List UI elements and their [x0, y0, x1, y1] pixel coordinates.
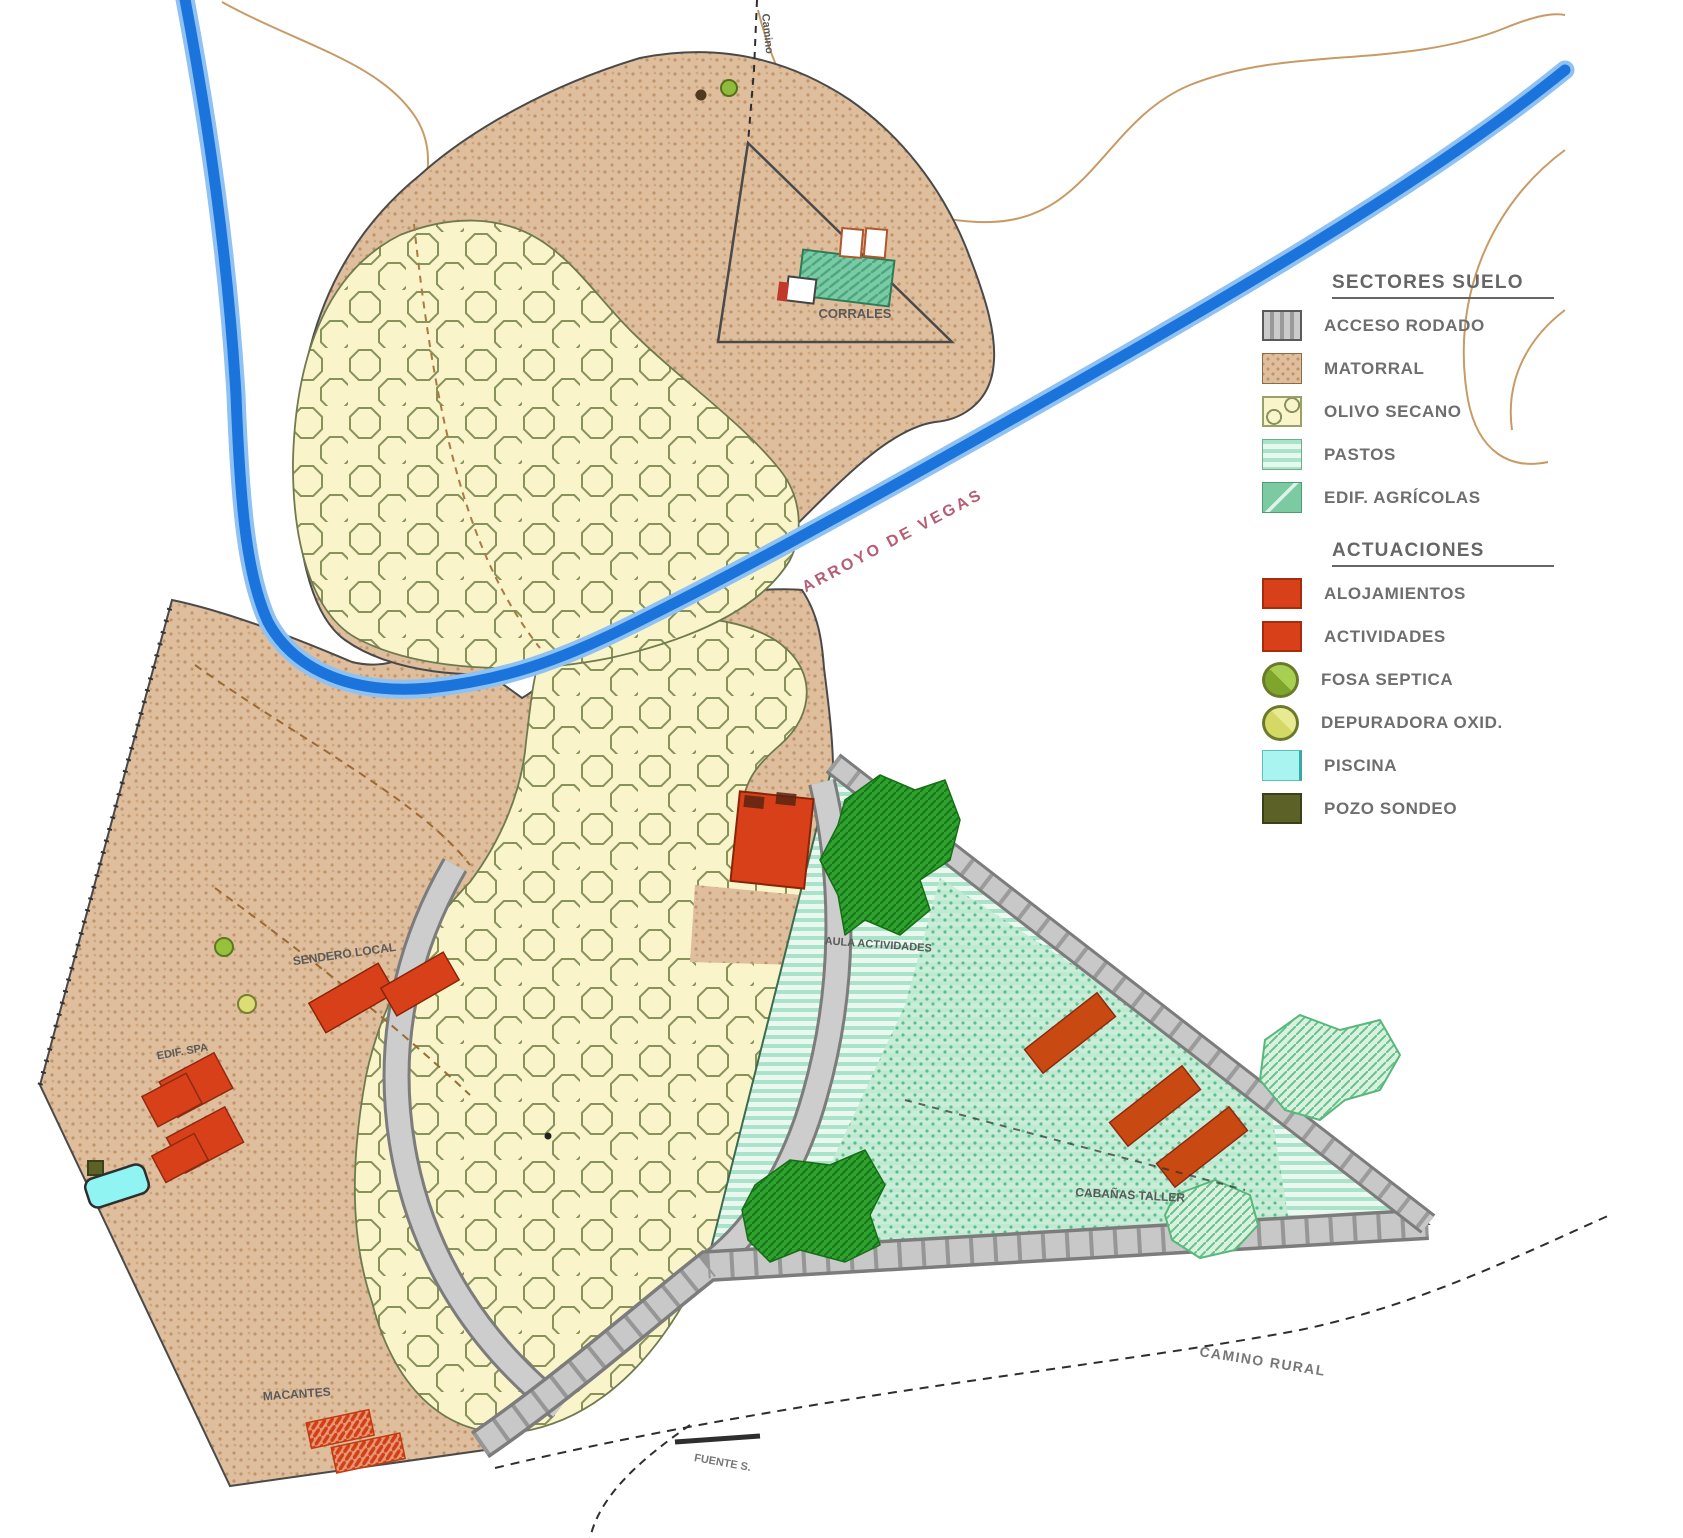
camino-rural-label: CAMINO RURAL: [1198, 1343, 1327, 1379]
legend-item-pastos: PASTOS: [1262, 438, 1602, 471]
legend-item-olivo-secano: OLIVO SECANO: [1262, 395, 1602, 428]
aula-building: [730, 791, 813, 888]
pozo-sondeo-marker: [88, 1161, 103, 1175]
legend-item-matorral: MATORRAL: [1262, 352, 1602, 385]
depuradora-swatch: [1262, 705, 1299, 741]
depuradora-marker: [238, 995, 256, 1013]
legend-item-pozo-sondeo: POZO SONDEO: [1262, 792, 1602, 825]
fuente-label: FUENTE S.: [693, 1452, 752, 1474]
camino-top-label: Camino: [759, 13, 775, 55]
legend-item-acceso-rodado: ACCESO RODADO: [1262, 309, 1602, 342]
top-parcel: [293, 52, 994, 674]
legend-item-depuradora: DEPURADORA OXID.: [1262, 706, 1602, 739]
legend-actuaciones: ACTUACIONES ALOJAMIENTOS ACTIVIDADES FOS…: [1262, 540, 1602, 825]
legend-actuaciones-title: ACTUACIONES: [1332, 540, 1554, 567]
legend-item-fosa-septica: FOSA SEPTICA: [1262, 663, 1602, 696]
legend-item-piscina: PISCINA: [1262, 749, 1602, 782]
pozo-sondeo-swatch: [1262, 793, 1302, 824]
legend: SECTORES SUELO ACCESO RODADO MATORRAL OL…: [1262, 272, 1602, 835]
acceso-rodado-swatch: [1262, 310, 1302, 341]
fosa-septica-marker-top: [721, 80, 737, 96]
arroyo-label: ARROYO DE VEGAS: [800, 486, 987, 596]
legend-item-edif-agricolas: EDIF. AGRÍCOLAS: [1262, 481, 1602, 514]
legend-item-actividades: ACTIVIDADES: [1262, 620, 1602, 653]
fosa-septica-swatch: [1262, 662, 1299, 698]
piscina-swatch: [1262, 750, 1302, 781]
legend-sectores: SECTORES SUELO ACCESO RODADO MATORRAL OL…: [1262, 272, 1602, 514]
edif-agricolas-swatch: [1262, 482, 1302, 513]
corrales-label: CORRALES: [819, 306, 892, 321]
matorral-swatch: [1262, 353, 1302, 384]
actividades-swatch: [1262, 621, 1302, 652]
fosa-septica-marker: [215, 938, 233, 956]
pastos-swatch: [1262, 439, 1302, 470]
pozo-marker-top: [696, 90, 707, 101]
site-plan-canvas: CORRALES ARROYO DE VEGAS Camino SENDERO …: [0, 0, 1683, 1538]
alojamientos-swatch: [1262, 578, 1302, 609]
legend-item-alojamientos: ALOJAMIENTOS: [1262, 577, 1602, 610]
legend-sectores-title: SECTORES SUELO: [1332, 272, 1554, 299]
olivo-secano-swatch: [1262, 396, 1302, 427]
